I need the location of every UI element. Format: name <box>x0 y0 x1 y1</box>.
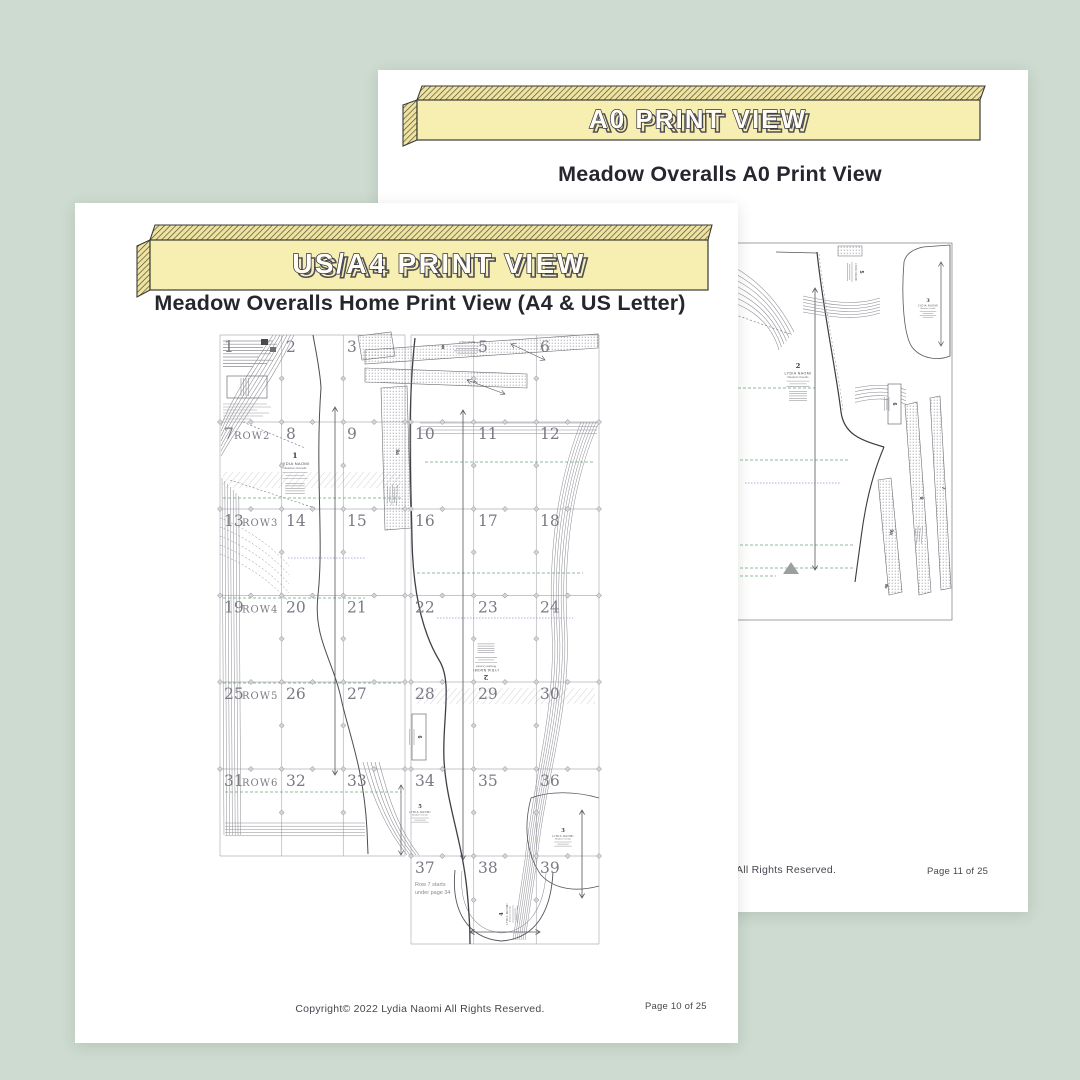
svg-text:39: 39 <box>540 859 560 877</box>
svg-text:under page 34: under page 34 <box>415 890 450 896</box>
front-footer-copyright: Copyright© 2022 Lydia Naomi All Rights R… <box>220 1003 620 1015</box>
svg-text:6: 6 <box>891 403 897 406</box>
svg-text:ROW2: ROW2 <box>234 431 270 442</box>
svg-text:LYDIA NAOMI: LYDIA NAOMI <box>854 263 858 281</box>
back-footer-page-number: Page 11 of 25 <box>927 866 988 877</box>
svg-text:Meadow Overalls: Meadow Overalls <box>509 906 512 922</box>
svg-text:12: 12 <box>540 425 560 443</box>
svg-text:3: 3 <box>926 298 930 304</box>
svg-text:2: 2 <box>286 338 296 356</box>
svg-text:Meadow Overalls: Meadow Overalls <box>555 838 571 841</box>
svg-text:20: 20 <box>286 599 306 617</box>
svg-text:Meadow Overalls: Meadow Overalls <box>921 308 936 310</box>
canvas: A0 PRINT VIEW A0 PRINT VIEW Meadow Overa… <box>0 0 1080 1080</box>
svg-text:ROW3: ROW3 <box>242 518 278 529</box>
svg-text:1: 1 <box>292 451 297 460</box>
svg-text:25: 25 <box>224 685 244 703</box>
svg-text:4: 4 <box>499 912 505 916</box>
svg-text:LYDIA NAOMI: LYDIA NAOMI <box>473 668 499 672</box>
svg-text:21: 21 <box>347 599 367 617</box>
banner-label: US/A4 PRINT VIEW <box>292 248 586 279</box>
svg-text:18: 18 <box>540 512 560 530</box>
svg-text:8: 8 <box>442 345 445 351</box>
svg-text:Meadow Overalls: Meadow Overalls <box>787 375 809 379</box>
svg-text:ROW5: ROW5 <box>242 691 278 702</box>
svg-text:26: 26 <box>286 685 306 703</box>
svg-text:15: 15 <box>347 512 367 530</box>
svg-text:6: 6 <box>540 338 550 356</box>
svg-text:16: 16 <box>415 512 435 530</box>
svg-text:ROW6: ROW6 <box>242 778 278 789</box>
svg-text:6: 6 <box>416 736 422 739</box>
svg-text:5: 5 <box>418 804 422 810</box>
svg-text:3: 3 <box>561 828 565 834</box>
svg-text:35: 35 <box>478 772 498 790</box>
svg-text:36: 36 <box>540 772 560 790</box>
svg-text:9b: 9b <box>884 583 889 589</box>
svg-text:LYDIA NAOMI: LYDIA NAOMI <box>785 371 812 375</box>
a0-banner-ribbon: A0 PRINT VIEW A0 PRINT VIEW <box>397 80 992 152</box>
svg-text:32: 32 <box>286 772 306 790</box>
svg-text:31: 31 <box>224 772 244 790</box>
svg-text:ROW4: ROW4 <box>242 605 278 616</box>
svg-text:19: 19 <box>224 599 244 617</box>
us-a4-pattern-diagram: 8LYDIA NAOMI79a1LYDIA NAOMIMeadow Overal… <box>215 330 605 950</box>
svg-text:Meadow Overalls: Meadow Overalls <box>283 466 307 470</box>
svg-text:22: 22 <box>415 599 435 617</box>
svg-text:10: 10 <box>415 425 435 443</box>
svg-text:28: 28 <box>415 685 435 703</box>
svg-text:33: 33 <box>347 772 367 790</box>
svg-text:9a: 9a <box>394 449 400 455</box>
svg-text:5: 5 <box>478 338 488 356</box>
banner-side-face <box>137 240 150 297</box>
svg-text:11: 11 <box>478 425 498 443</box>
svg-text:34: 34 <box>415 772 435 790</box>
svg-text:38: 38 <box>478 859 498 877</box>
svg-text:9: 9 <box>347 425 357 443</box>
svg-text:37: 37 <box>415 859 435 877</box>
svg-text:14: 14 <box>286 512 306 530</box>
svg-text:LYDIA NAOMI: LYDIA NAOMI <box>409 810 431 814</box>
back-page-title: Meadow Overalls A0 Print View <box>410 162 1030 187</box>
svg-text:Meadow Overalls: Meadow Overalls <box>412 814 428 817</box>
banner-top-face <box>417 86 985 100</box>
svg-text:LYDIA NAOMI: LYDIA NAOMI <box>459 340 476 344</box>
front-footer-page-number: Page 10 of 25 <box>645 1001 707 1012</box>
svg-text:LYDIA NAOMI: LYDIA NAOMI <box>552 834 574 838</box>
svg-text:7: 7 <box>224 425 234 443</box>
svg-text:24: 24 <box>540 599 560 617</box>
svg-text:9a: 9a <box>888 529 894 535</box>
svg-text:LYDIA NAOMI: LYDIA NAOMI <box>918 304 939 308</box>
svg-text:13: 13 <box>224 512 244 530</box>
back-footer-copyright: All Rights Reserved. <box>736 864 836 876</box>
svg-text:1: 1 <box>224 338 234 356</box>
svg-text:27: 27 <box>347 685 367 703</box>
front-page-title: Meadow Overalls Home Print View (A4 & US… <box>100 291 740 316</box>
svg-text:30: 30 <box>540 685 560 703</box>
svg-text:Row 7 starts: Row 7 starts <box>415 882 446 888</box>
svg-text:LYDIA NAOMI: LYDIA NAOMI <box>505 903 509 925</box>
banner-top-face <box>150 225 712 240</box>
svg-text:2: 2 <box>796 362 801 370</box>
banner-label: A0 PRINT VIEW <box>589 104 807 134</box>
svg-text:29: 29 <box>478 685 498 703</box>
front-page: US/A4 PRINT VIEW US/A4 PRINT VIEW Meadow… <box>75 203 738 1043</box>
svg-text:Meadow Overalls: Meadow Overalls <box>475 664 496 668</box>
banner-side-face <box>403 100 417 146</box>
svg-text:8: 8 <box>286 425 296 443</box>
svg-text:17: 17 <box>478 512 498 530</box>
svg-text:23: 23 <box>478 599 498 617</box>
svg-text:2: 2 <box>484 673 489 681</box>
svg-text:3: 3 <box>347 338 357 356</box>
